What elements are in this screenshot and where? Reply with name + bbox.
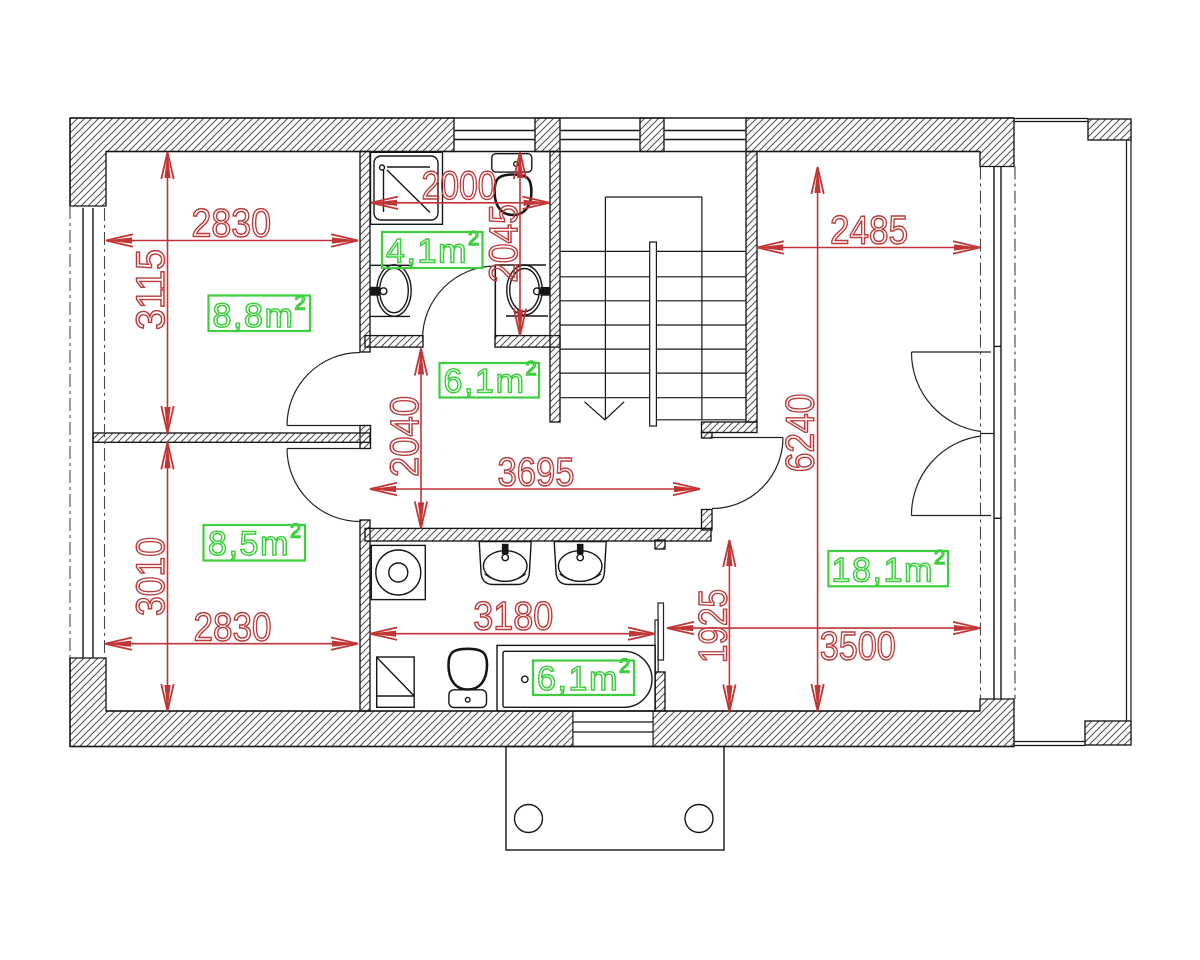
svg-text:6,1m2: 6,1m2 bbox=[444, 358, 539, 401]
svg-text:8,5m2: 8,5m2 bbox=[208, 521, 303, 564]
svg-text:6240: 6240 bbox=[778, 394, 822, 473]
svg-text:4,1m2: 4,1m2 bbox=[386, 228, 481, 271]
svg-text:2485: 2485 bbox=[830, 209, 908, 253]
svg-text:2040: 2040 bbox=[383, 396, 427, 477]
svg-text:3180: 3180 bbox=[473, 595, 553, 639]
svg-text:18,1m2: 18,1m2 bbox=[832, 547, 947, 590]
svg-text:2000: 2000 bbox=[422, 164, 497, 208]
svg-text:8,8m2: 8,8m2 bbox=[213, 293, 308, 336]
svg-text:3115: 3115 bbox=[129, 249, 173, 330]
svg-text:2830: 2830 bbox=[194, 606, 272, 650]
svg-text:1925: 1925 bbox=[692, 589, 736, 663]
svg-text:2830: 2830 bbox=[192, 202, 272, 246]
svg-text:3695: 3695 bbox=[498, 451, 575, 495]
svg-text:3500: 3500 bbox=[820, 625, 896, 669]
svg-text:3010: 3010 bbox=[129, 537, 173, 616]
svg-text:2045: 2045 bbox=[482, 204, 526, 283]
svg-text:6,1m2: 6,1m2 bbox=[537, 656, 632, 699]
